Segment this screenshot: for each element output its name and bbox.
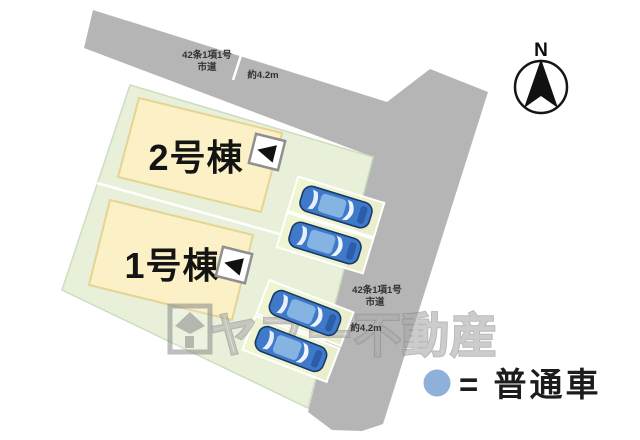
- watermark-text: ヤフー不動産: [210, 309, 498, 362]
- top-road-width-label: 約4.2m: [247, 69, 278, 81]
- legend-car-dot: [424, 370, 451, 397]
- top-road-name-line2: 市道: [197, 61, 217, 73]
- site-plan: ヤフー不動産 2号棟 1号棟 42条1項1号 市道 約4.2m 42条1項1号 …: [0, 0, 640, 440]
- right-road-width-label: 約4.2m: [350, 322, 381, 334]
- building-2-label: 2号棟: [148, 137, 243, 178]
- right-road-name-line2: 市道: [365, 296, 385, 308]
- right-road-name-line1: 42条1項1号: [352, 284, 402, 296]
- building-1-label: 1号棟: [124, 245, 219, 286]
- legend-label: = 普通車: [459, 366, 601, 403]
- compass-label-n: N: [534, 40, 548, 61]
- watermark-logo-icon: [170, 306, 210, 352]
- direction-marker-2: [249, 134, 285, 170]
- top-road-name-line1: 42条1項1号: [182, 49, 232, 61]
- direction-marker-1: [216, 247, 252, 283]
- site-plan-canvas: ヤフー不動産 2号棟 1号棟 42条1項1号 市道 約4.2m 42条1項1号 …: [0, 0, 640, 440]
